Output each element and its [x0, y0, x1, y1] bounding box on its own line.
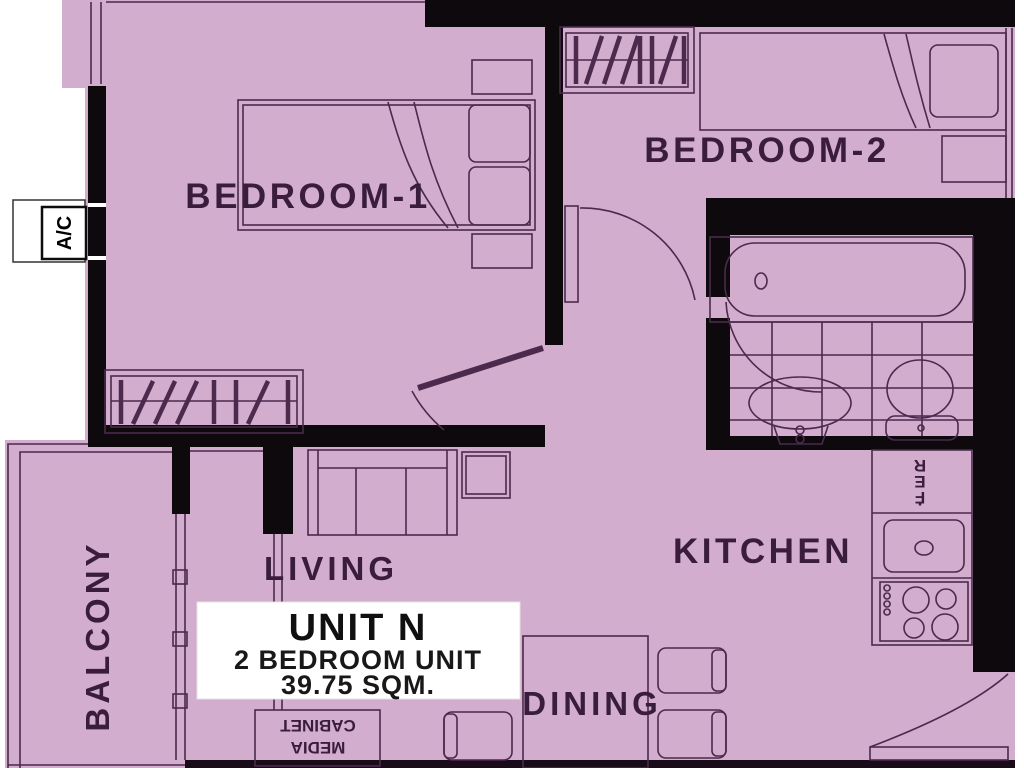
ac-duct-line-bottom	[88, 256, 106, 260]
bedroom2-label: BEDROOM-2	[644, 131, 889, 170]
left-wall	[88, 86, 106, 440]
bathroom-bottom-wall	[706, 436, 975, 450]
kitchen-label: KITCHEN	[673, 532, 853, 571]
dining-label: DINING	[522, 685, 662, 722]
living-label: LIVING	[264, 550, 398, 587]
right-wall	[973, 235, 1015, 672]
balcony-floor	[5, 440, 90, 768]
balcony-label: BALCONY	[79, 540, 116, 731]
bedroom1-bottom-wall	[88, 425, 545, 447]
ref-letter-4: .	[918, 499, 923, 518]
media-cabinet-line1: MEDIA	[291, 738, 346, 757]
bathroom-top-wall	[706, 198, 1015, 235]
balcony-wall-stub	[172, 444, 190, 514]
unit-area: 39.75 SQM.	[281, 670, 435, 700]
top-wall	[425, 0, 1015, 27]
exterior-ledge	[62, 0, 86, 88]
unit-name: UNIT N	[289, 607, 428, 649]
floor-plan-drawing: A/C BEDROOM-1 BEDROOM-2 LIVING KITCHEN D…	[0, 0, 1024, 768]
bedroom1-label: BEDROOM-1	[185, 177, 430, 216]
living-wall-stub	[263, 444, 293, 534]
bathroom-left-wall-lower	[706, 318, 730, 450]
ac-unit: A/C	[13, 200, 86, 262]
ac-label: A/C	[54, 216, 76, 250]
ac-duct-line-top	[88, 203, 106, 207]
unit-info-box: UNIT N 2 BEDROOM UNIT 39.75 SQM.	[197, 602, 520, 700]
floor-plan-page: A/C BEDROOM-1 BEDROOM-2 LIVING KITCHEN D…	[0, 0, 1024, 768]
media-cabinet-line2: CABINET	[280, 716, 356, 735]
